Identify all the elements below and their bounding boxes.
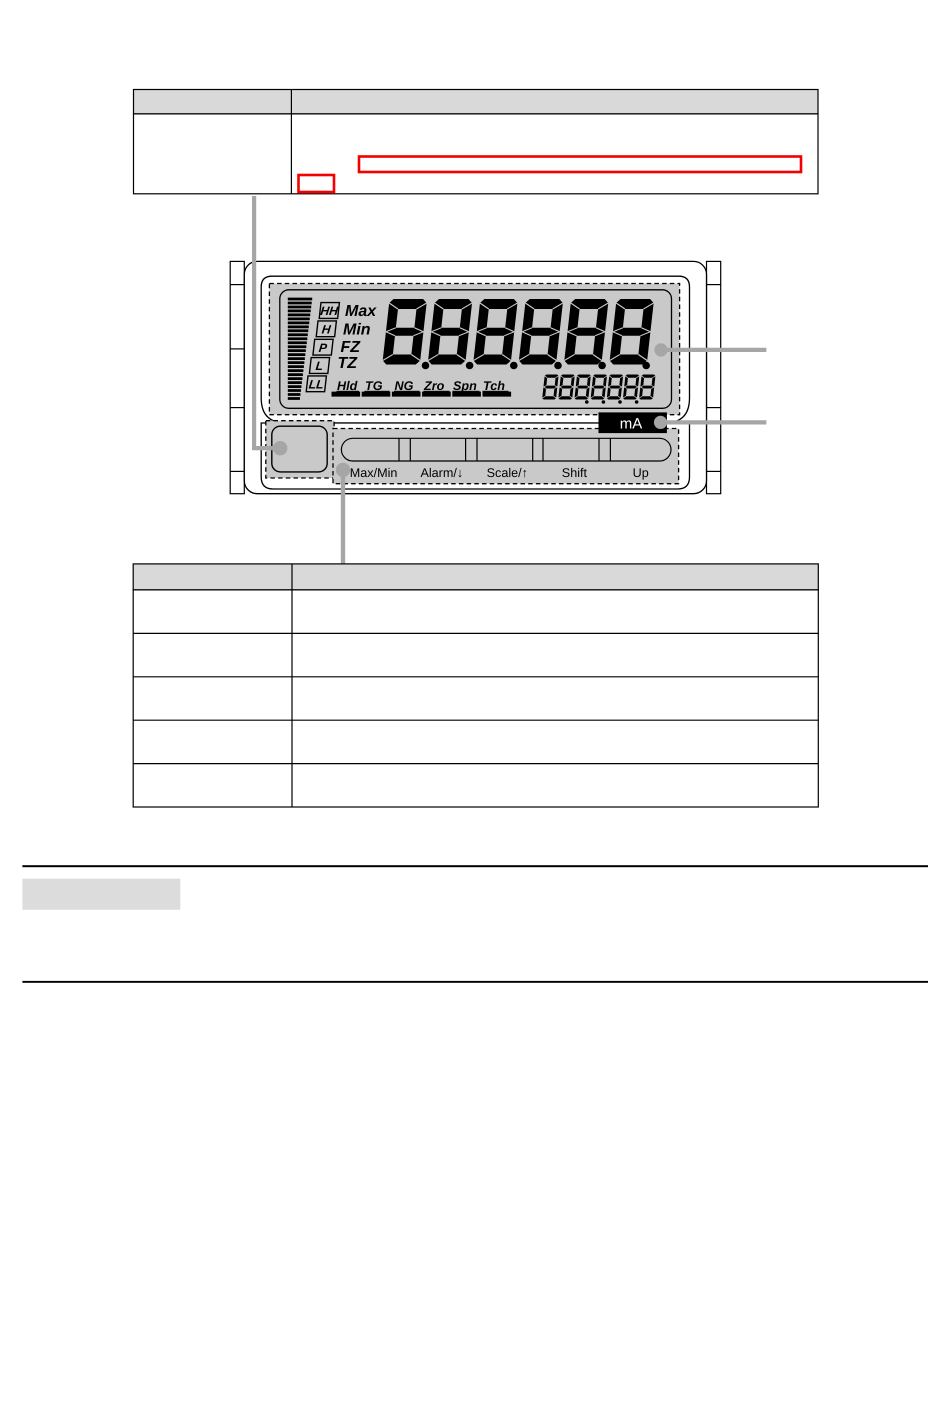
svg-text:Scale/↑: Scale/↑ [487, 466, 528, 480]
svg-text:mA: mA [620, 415, 643, 432]
svg-text:TZ: TZ [338, 355, 359, 372]
svg-text:Min: Min [343, 321, 371, 338]
svg-text:HH: HH [320, 304, 340, 318]
svg-text:Up: Up [633, 466, 649, 480]
svg-text:Alarm/↓: Alarm/↓ [420, 466, 463, 480]
svg-text:FZ: FZ [341, 339, 362, 356]
svg-text:Max/Min: Max/Min [350, 466, 398, 480]
svg-text:LL: LL [308, 378, 324, 392]
svg-text:L: L [315, 359, 324, 373]
svg-text:Max: Max [345, 303, 377, 320]
svg-text:Shift: Shift [562, 466, 588, 480]
